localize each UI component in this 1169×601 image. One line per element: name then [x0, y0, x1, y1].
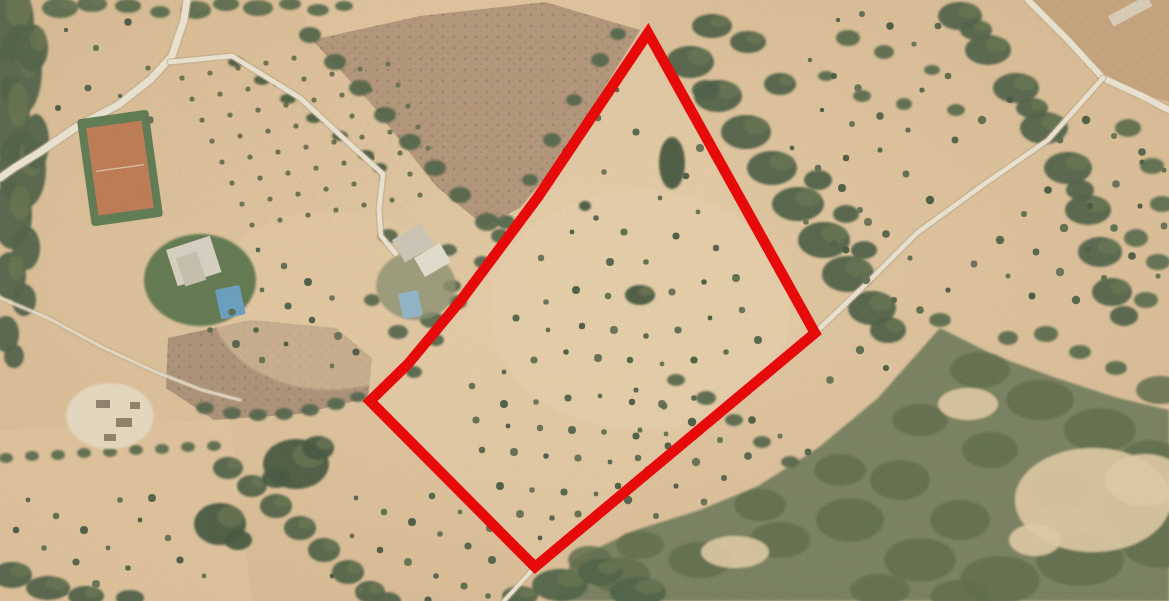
photo-grain — [0, 0, 1169, 601]
aerial-parcel-photo — [0, 0, 1169, 601]
aerial-scene — [0, 0, 1169, 601]
